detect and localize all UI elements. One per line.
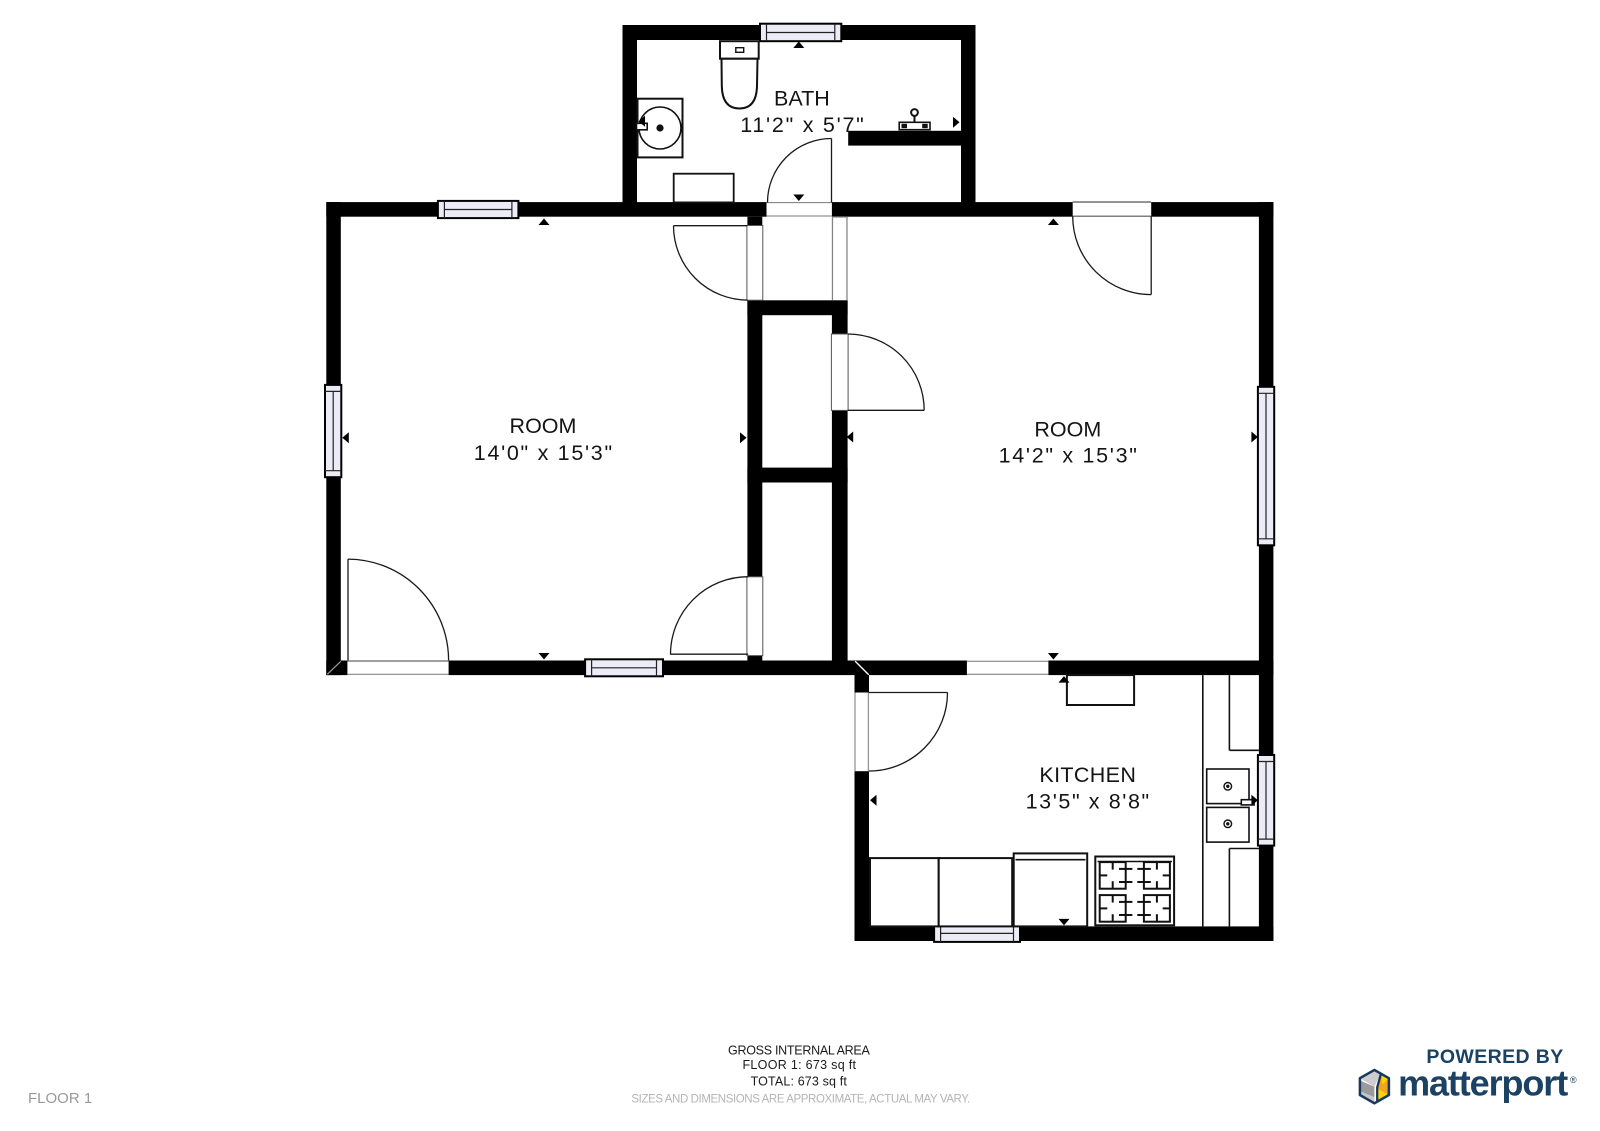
svg-text:ROOM: ROOM [510,414,577,438]
svg-text:®: ® [1570,1075,1577,1085]
svg-text:11'2" x 5'7": 11'2" x 5'7" [740,113,865,137]
svg-text:GROSS INTERNAL AREA: GROSS INTERNAL AREA [728,1043,870,1057]
svg-text:TOTAL: 673 sq ft: TOTAL: 673 sq ft [751,1075,848,1089]
svg-text:KITCHEN: KITCHEN [1039,763,1136,787]
svg-text:BATH: BATH [774,86,830,110]
svg-text:SIZES AND DIMENSIONS ARE APPRO: SIZES AND DIMENSIONS ARE APPROXIMATE, AC… [631,1094,970,1106]
svg-text:13'5" x 8'8": 13'5" x 8'8" [1026,789,1151,813]
svg-text:matterport: matterport [1398,1063,1568,1104]
svg-text:FLOOR 1: 673 sq ft: FLOOR 1: 673 sq ft [743,1058,857,1072]
svg-text:ROOM: ROOM [1034,418,1101,442]
svg-text:14'2" x 15'3": 14'2" x 15'3" [999,444,1139,468]
svg-text:14'0" x 15'3": 14'0" x 15'3" [474,441,614,465]
svg-text:FLOOR 1: FLOOR 1 [28,1090,92,1107]
